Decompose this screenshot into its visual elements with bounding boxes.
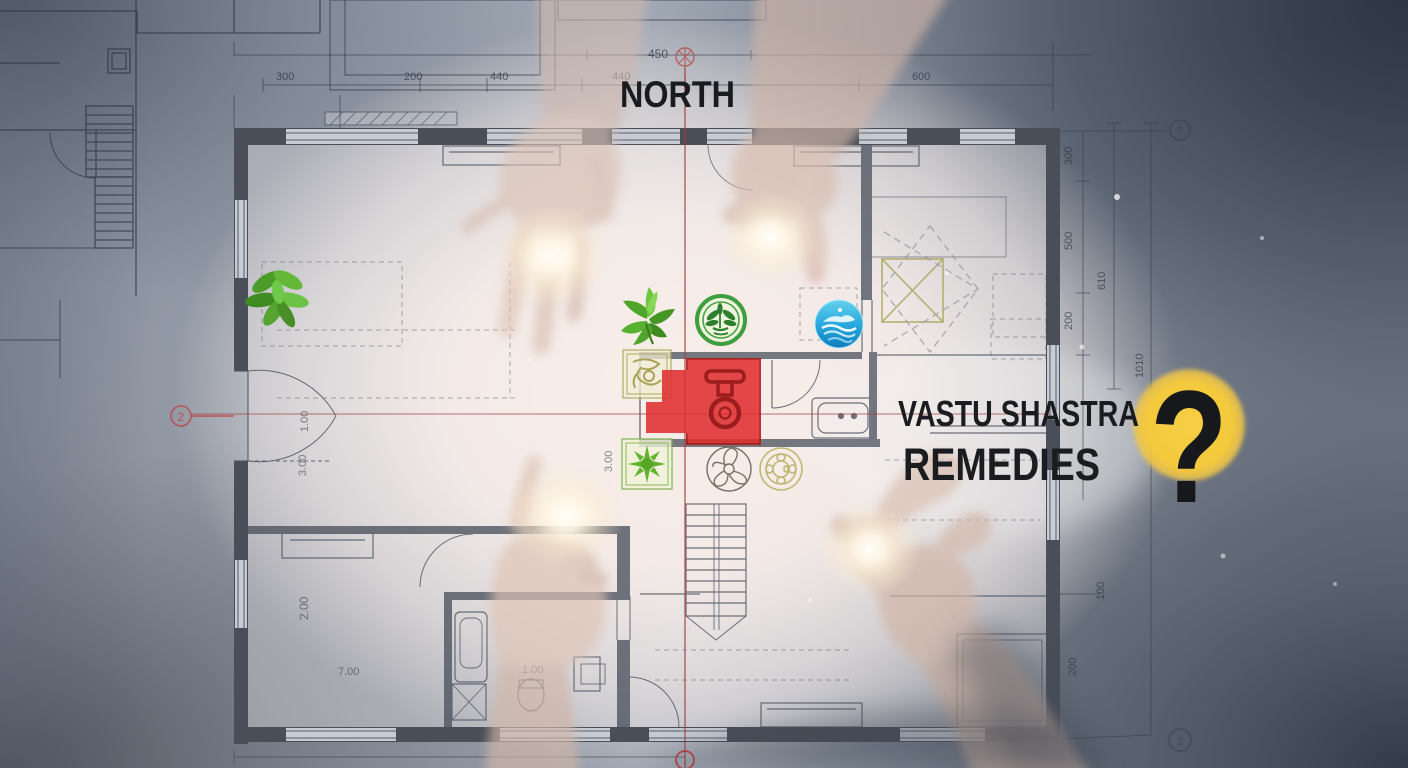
svg-text:200: 200 bbox=[404, 71, 422, 83]
svg-text:500: 500 bbox=[1063, 232, 1075, 250]
svg-text:2.00: 2.00 bbox=[297, 596, 311, 620]
svg-text:NORTH: NORTH bbox=[620, 74, 735, 115]
svg-text:1010: 1010 bbox=[1134, 354, 1146, 378]
svg-text:200: 200 bbox=[1067, 658, 1079, 676]
svg-text:200: 200 bbox=[1063, 312, 1075, 330]
svg-text:450: 450 bbox=[648, 47, 668, 61]
svg-text:VASTU SHASTRA: VASTU SHASTRA bbox=[898, 393, 1139, 434]
svg-text:610: 610 bbox=[1096, 272, 1108, 290]
svg-text:REMEDIES: REMEDIES bbox=[903, 439, 1100, 490]
svg-text:?: ? bbox=[1177, 124, 1184, 138]
svg-text:2: 2 bbox=[178, 410, 185, 424]
svg-text:7.00: 7.00 bbox=[338, 666, 359, 678]
svg-text:600: 600 bbox=[912, 71, 930, 83]
svg-text:440: 440 bbox=[490, 71, 508, 83]
svg-text:100: 100 bbox=[1095, 582, 1107, 600]
svg-text:3: 3 bbox=[1177, 734, 1184, 748]
svg-text:?: ? bbox=[1150, 357, 1228, 536]
svg-text:300: 300 bbox=[276, 71, 294, 83]
svg-text:300: 300 bbox=[1063, 147, 1075, 165]
svg-text:3.00: 3.00 bbox=[297, 455, 309, 476]
svg-text:3.00: 3.00 bbox=[603, 451, 615, 472]
